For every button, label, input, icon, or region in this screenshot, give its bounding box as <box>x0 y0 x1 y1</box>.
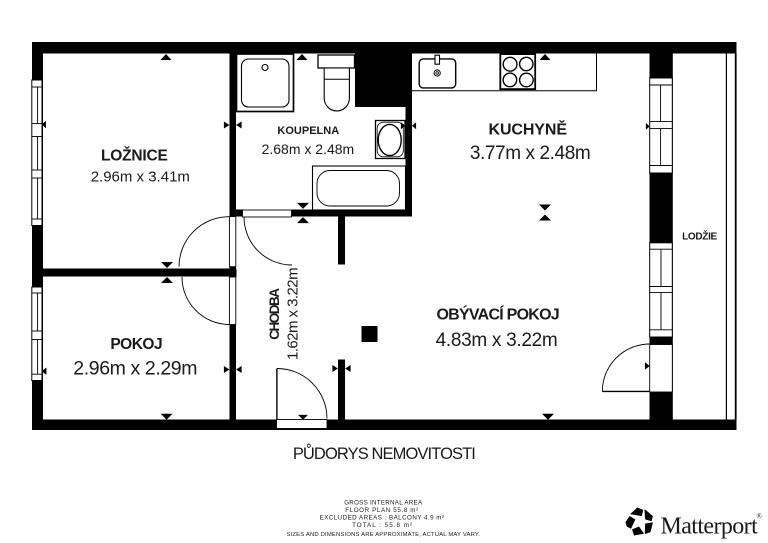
svg-text:2.96m x 2.29m: 2.96m x 2.29m <box>73 357 197 379</box>
svg-text:SIZES AND DIMENSIONS ARE APPRO: SIZES AND DIMENSIONS ARE APPROXIMATE, AC… <box>287 532 481 538</box>
svg-text:EXCLUDED AREAS : BALCONY 4.9: EXCLUDED AREAS : BALCONY 4.9 m² <box>320 515 445 522</box>
svg-text:®: ® <box>757 513 763 521</box>
svg-text:PŮDORYS NEMOVITOSTI: PŮDORYS NEMOVITOSTI <box>293 444 475 463</box>
svg-text:FLOOR PLAN 55.8 m²: FLOOR PLAN 55.8 m² <box>345 507 419 514</box>
svg-text:GROSS INTERNAL AREA: GROSS INTERNAL AREA <box>344 499 423 506</box>
svg-text:KUCHYNĚ: KUCHYNĚ <box>488 120 567 139</box>
svg-text:2.68m x 2.48m: 2.68m x 2.48m <box>262 141 355 157</box>
svg-text:Matterport: Matterport <box>661 514 759 540</box>
svg-text:3.77m x 2.48m: 3.77m x 2.48m <box>470 143 590 164</box>
svg-text:OBÝVACÍ POKOJ: OBÝVACÍ POKOJ <box>436 304 558 323</box>
svg-text:LOŽNICE: LOŽNICE <box>101 146 168 164</box>
svg-text:TOTAL : 55.8 m²: TOTAL : 55.8 m² <box>352 522 413 529</box>
svg-text:2.96m x 3.41m: 2.96m x 3.41m <box>91 168 190 185</box>
svg-text:1.62m x 3.22m: 1.62m x 3.22m <box>285 268 302 360</box>
svg-text:CHODBA: CHODBA <box>267 288 282 340</box>
svg-text:POKOJ: POKOJ <box>110 336 162 353</box>
svg-text:KOUPELNA: KOUPELNA <box>277 125 339 137</box>
svg-text:LODŽIE: LODŽIE <box>682 230 717 243</box>
svg-text:4.83m x 3.22m: 4.83m x 3.22m <box>436 330 558 351</box>
